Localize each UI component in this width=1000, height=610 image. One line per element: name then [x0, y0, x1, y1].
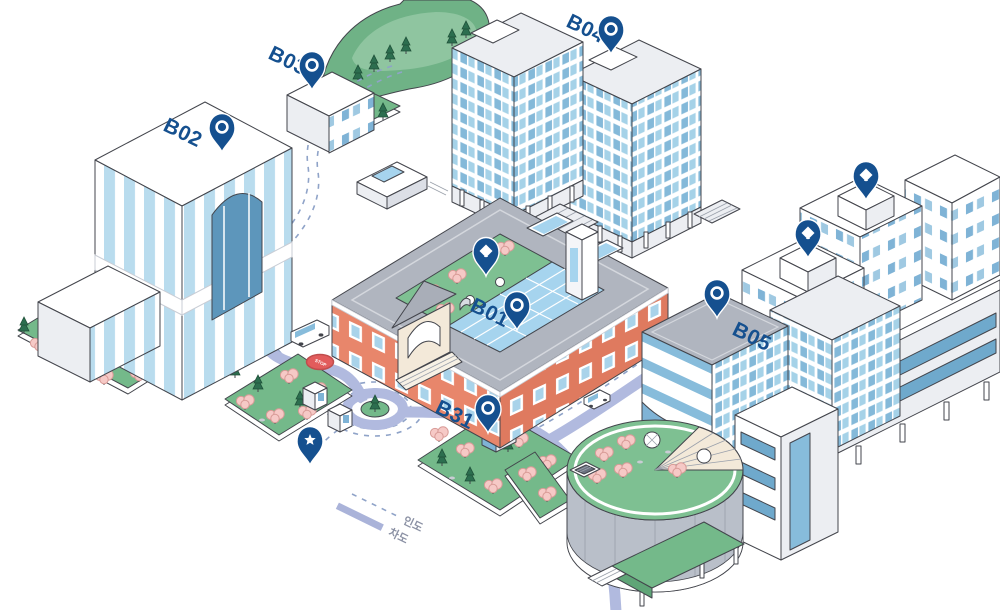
bus-stop-marker: STOP	[307, 355, 334, 370]
campus-map-canvas: STOP B02 B03 B04 B01 B05 B31 인도 차도	[0, 0, 1000, 610]
campus-map: STOP B02 B03 B04 B01 B05 B31 인도 차도	[0, 0, 1000, 610]
legend-sidewalk-label: 인도	[401, 513, 425, 534]
pin-star-plaza[interactable]	[297, 427, 323, 466]
canopy-pavilion	[357, 162, 448, 209]
clock-tower	[566, 224, 598, 300]
kiosk-2	[328, 404, 352, 432]
shuttle-bus	[291, 320, 329, 347]
drum-annex	[735, 387, 838, 560]
legend: 인도 차도	[334, 484, 425, 550]
roundabout	[347, 393, 403, 425]
legend-road-line	[337, 506, 382, 528]
kiosk-1	[303, 382, 327, 410]
building-b02	[38, 102, 292, 400]
pin-b04[interactable]	[598, 16, 624, 55]
